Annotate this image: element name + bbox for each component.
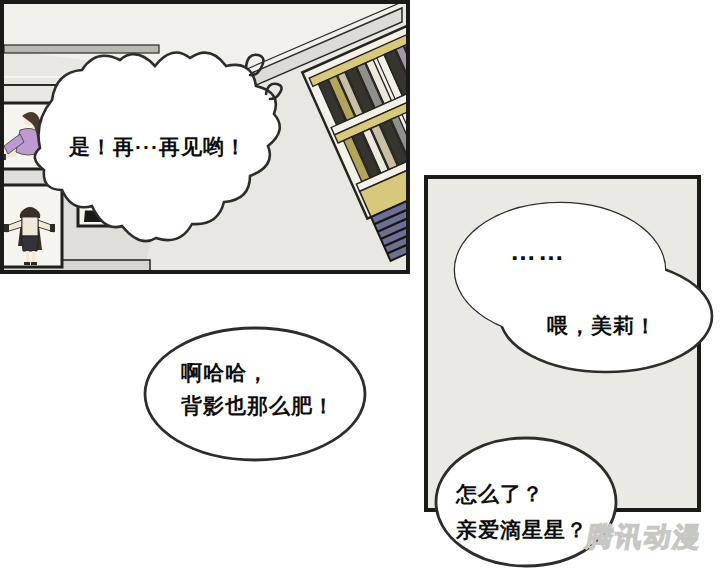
reply-line-1: 怎么了？ [456,476,588,512]
reply-line-2: 亲爱滴星星？ [456,512,588,548]
painting-standing-woman [4,185,62,267]
comic-page: 是！再···再见哟！ 啊哈哈， 背影也那么肥！ …… 喂，美莉！ 怎么了？ 亲爱… [0,0,720,578]
laugh-bubble-text: 啊哈哈， 背影也那么肥！ [181,356,335,422]
reply-bubble-text: 怎么了？ 亲爱滴星星？ [456,476,588,548]
phone-call-panel [424,175,701,512]
silence-bubble-text: …… [468,236,608,267]
bar-stool [84,168,118,222]
tencent-comics-watermark: 腾讯动漫 [583,519,705,555]
laugh-line-2: 背影也那么肥！ [181,389,335,422]
call-bubble-text: 喂，美莉！ [516,312,688,340]
painting-stool-woman [78,108,167,226]
shout-bubble-text: 是！再···再见哟！ [36,133,280,161]
laugh-line-1: 啊哈哈， [181,356,335,389]
